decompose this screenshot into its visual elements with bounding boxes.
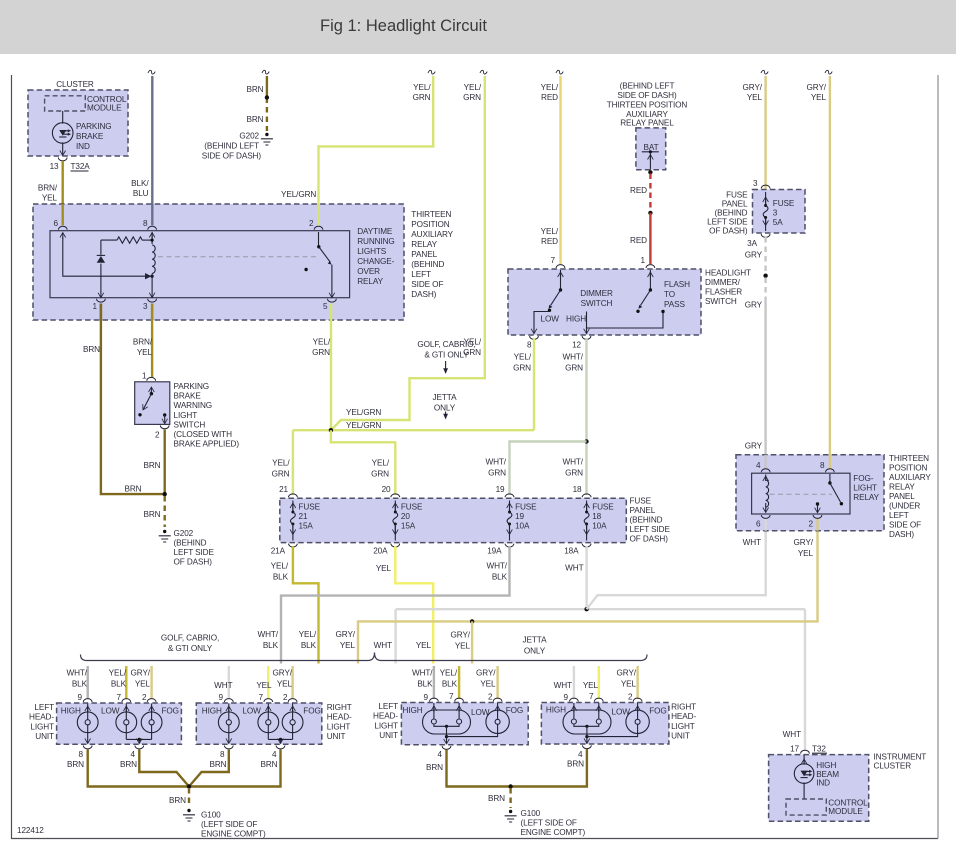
svg-text:OF DASH): OF DASH) xyxy=(174,558,213,567)
svg-text:BLU: BLU xyxy=(133,189,149,198)
svg-text:9: 9 xyxy=(564,693,569,702)
svg-text:WHT: WHT xyxy=(783,730,801,739)
svg-text:RED: RED xyxy=(541,237,558,246)
svg-text:7: 7 xyxy=(449,692,454,701)
svg-text:UNIT: UNIT xyxy=(35,732,54,741)
svg-text:YEL: YEL xyxy=(376,564,392,573)
svg-text:T32: T32 xyxy=(812,745,826,754)
svg-text:RELAY: RELAY xyxy=(357,277,383,286)
svg-text:WHT/: WHT/ xyxy=(486,562,507,571)
svg-text:HEAD-: HEAD- xyxy=(373,712,398,721)
svg-text:SWITCH: SWITCH xyxy=(174,420,206,429)
svg-text:OF DASH): OF DASH) xyxy=(630,535,669,544)
svg-text:LIGHT: LIGHT xyxy=(174,411,198,420)
svg-text:BLK: BLK xyxy=(273,573,289,582)
svg-text:21A: 21A xyxy=(271,547,286,556)
svg-text:1: 1 xyxy=(142,372,147,381)
svg-text:LEFT: LEFT xyxy=(34,703,54,712)
svg-text:BRN: BRN xyxy=(120,760,137,769)
svg-text:FOG: FOG xyxy=(303,707,320,716)
svg-text:RIGHT: RIGHT xyxy=(327,703,352,712)
svg-text:3: 3 xyxy=(143,302,148,311)
svg-text:LEFT SIDE: LEFT SIDE xyxy=(174,548,215,557)
svg-text:G100: G100 xyxy=(521,809,541,818)
svg-text:YEL/: YEL/ xyxy=(271,562,289,571)
svg-text:SIDE OF DASH): SIDE OF DASH) xyxy=(202,152,262,161)
svg-text:IND: IND xyxy=(76,142,90,151)
svg-text:FUSE: FUSE xyxy=(515,503,537,512)
svg-text:RELAY PANEL: RELAY PANEL xyxy=(620,119,674,128)
svg-text:YEL: YEL xyxy=(416,641,432,650)
svg-text:3: 3 xyxy=(773,209,778,218)
svg-text:LIGHT: LIGHT xyxy=(671,722,695,731)
svg-text:HIGH: HIGH xyxy=(546,706,566,715)
svg-text:BRAKE: BRAKE xyxy=(76,132,104,141)
svg-text:BLK/: BLK/ xyxy=(131,179,149,188)
svg-text:FOG: FOG xyxy=(162,707,179,716)
svg-text:FUSE: FUSE xyxy=(299,503,321,512)
svg-text:FUSE: FUSE xyxy=(726,191,748,200)
svg-text:GRY: GRY xyxy=(745,301,763,310)
svg-text:2: 2 xyxy=(155,431,160,440)
svg-text:5: 5 xyxy=(323,302,328,311)
svg-text:WHT: WHT xyxy=(565,564,583,573)
svg-text:BLK: BLK xyxy=(492,573,508,582)
svg-text:CLUSTER: CLUSTER xyxy=(56,80,94,89)
svg-text:BLK: BLK xyxy=(442,680,458,689)
svg-text:YEL: YEL xyxy=(583,681,599,690)
svg-text:GRY/: GRY/ xyxy=(131,669,151,678)
svg-text:GRN: GRN xyxy=(371,470,389,479)
svg-text:THIRTEEN: THIRTEEN xyxy=(411,210,451,219)
svg-text:GRY/: GRY/ xyxy=(273,669,293,678)
svg-text:(BEHIND LEFT: (BEHIND LEFT xyxy=(620,82,675,91)
svg-text:ENGINE COMPT): ENGINE COMPT) xyxy=(521,828,586,837)
svg-text:RUNNING: RUNNING xyxy=(357,237,395,246)
svg-text:GRN: GRN xyxy=(488,469,506,478)
svg-text:MODULE: MODULE xyxy=(828,807,863,816)
svg-text:GRY: GRY xyxy=(745,251,763,260)
svg-text:19A: 19A xyxy=(487,547,502,556)
svg-text:WHT: WHT xyxy=(374,641,392,650)
svg-text:18A: 18A xyxy=(564,547,579,556)
svg-text:THIRTEEN: THIRTEEN xyxy=(889,454,929,463)
svg-text:YEL: YEL xyxy=(621,680,637,689)
svg-text:YEL/: YEL/ xyxy=(440,669,458,678)
svg-text:PARKING: PARKING xyxy=(76,122,112,131)
svg-text:DASH): DASH) xyxy=(411,290,436,299)
svg-text:WHT: WHT xyxy=(214,681,232,690)
svg-text:WHT: WHT xyxy=(554,681,572,690)
svg-text:BRN: BRN xyxy=(426,763,443,772)
svg-text:FLASH: FLASH xyxy=(664,280,690,289)
svg-text:FUSE: FUSE xyxy=(592,503,614,512)
svg-text:YEL/GRN: YEL/GRN xyxy=(346,408,381,417)
svg-text:WHT/: WHT/ xyxy=(485,458,506,467)
svg-text:PANEL: PANEL xyxy=(722,200,748,209)
svg-text:YEL: YEL xyxy=(137,348,153,357)
svg-text:WHT/: WHT/ xyxy=(562,353,583,362)
svg-text:BRAKE: BRAKE xyxy=(174,392,202,401)
svg-text:FUSE: FUSE xyxy=(630,497,652,506)
svg-text:Fig 1: Headlight Circuit: Fig 1: Headlight Circuit xyxy=(320,17,487,35)
svg-text:UNIT: UNIT xyxy=(671,732,690,741)
svg-text:4: 4 xyxy=(756,461,761,470)
svg-text:BRN: BRN xyxy=(210,760,227,769)
svg-text:GRY/: GRY/ xyxy=(476,669,496,678)
svg-text:(BEHIND: (BEHIND xyxy=(174,539,207,548)
svg-text:YEL: YEL xyxy=(798,549,814,558)
svg-text:BRN: BRN xyxy=(67,760,84,769)
svg-text:BRN: BRN xyxy=(247,115,264,124)
svg-text:8: 8 xyxy=(527,341,532,350)
svg-text:21: 21 xyxy=(299,512,308,521)
svg-text:2: 2 xyxy=(309,219,314,228)
svg-text:PANEL: PANEL xyxy=(889,492,915,501)
svg-text:4: 4 xyxy=(578,750,583,759)
svg-text:7: 7 xyxy=(259,693,264,702)
svg-text:FOG: FOG xyxy=(506,706,523,715)
svg-text:4: 4 xyxy=(131,750,136,759)
svg-text:GRY/: GRY/ xyxy=(807,83,827,92)
svg-text:18: 18 xyxy=(592,512,601,521)
svg-text:YEL: YEL xyxy=(811,93,827,102)
svg-text:RED: RED xyxy=(541,93,558,102)
svg-text:17: 17 xyxy=(790,745,799,754)
svg-text:HEAD-: HEAD- xyxy=(327,713,352,722)
svg-text:10A: 10A xyxy=(515,522,530,531)
svg-text:RIGHT: RIGHT xyxy=(671,703,696,712)
svg-text:15A: 15A xyxy=(299,522,314,531)
svg-text:SIDE OF: SIDE OF xyxy=(889,521,921,530)
svg-text:LIGHTS: LIGHTS xyxy=(357,247,387,256)
svg-text:YEL/: YEL/ xyxy=(514,353,532,362)
svg-text:YEL/: YEL/ xyxy=(272,459,290,468)
svg-text:RED: RED xyxy=(630,236,647,245)
svg-text:YEL/GRN: YEL/GRN xyxy=(346,421,381,430)
svg-text:CHANGE-: CHANGE- xyxy=(357,257,394,266)
svg-text:LOW: LOW xyxy=(612,708,631,717)
svg-text:(LEFT SIDE OF: (LEFT SIDE OF xyxy=(201,820,257,829)
svg-text:YEL: YEL xyxy=(747,93,763,102)
svg-text:DIMMER/: DIMMER/ xyxy=(705,278,741,287)
svg-text:LEFT: LEFT xyxy=(411,270,431,279)
svg-text:DIMMER: DIMMER xyxy=(580,289,613,298)
svg-text:7: 7 xyxy=(589,692,594,701)
svg-text:HIGH: HIGH xyxy=(403,706,423,715)
svg-text:OF DASH): OF DASH) xyxy=(709,227,748,236)
svg-text:BLK: BLK xyxy=(417,680,433,689)
svg-text:LOW: LOW xyxy=(541,315,560,324)
svg-text:LIGHT: LIGHT xyxy=(30,722,54,731)
svg-text:GOLF, CABRIO,: GOLF, CABRIO, xyxy=(417,340,475,349)
svg-text:BLK: BLK xyxy=(111,680,127,689)
svg-text:(BEHIND LEFT: (BEHIND LEFT xyxy=(204,142,259,151)
svg-text:SWITCH: SWITCH xyxy=(581,299,613,308)
svg-text:2: 2 xyxy=(283,693,288,702)
svg-text:YEL/: YEL/ xyxy=(109,669,127,678)
svg-text:YEL: YEL xyxy=(277,680,293,689)
svg-text:MODULE: MODULE xyxy=(87,104,122,113)
svg-text:(UNDER: (UNDER xyxy=(889,502,920,511)
svg-text:G202: G202 xyxy=(239,132,259,141)
svg-text:PASS: PASS xyxy=(664,300,685,309)
svg-text:LEFT: LEFT xyxy=(889,511,909,520)
svg-text:LOW: LOW xyxy=(471,708,490,717)
svg-text:POSITION: POSITION xyxy=(411,220,450,229)
svg-text:20: 20 xyxy=(401,512,410,521)
svg-text:TO: TO xyxy=(664,290,675,299)
svg-text:YEL: YEL xyxy=(480,680,496,689)
svg-text:AUXILIARY: AUXILIARY xyxy=(411,230,453,239)
svg-text:GRY/: GRY/ xyxy=(617,669,637,678)
svg-text:G100: G100 xyxy=(201,811,221,820)
svg-text:BRN: BRN xyxy=(488,794,505,803)
svg-text:6: 6 xyxy=(54,219,59,228)
svg-text:BRN: BRN xyxy=(83,345,100,354)
svg-text:21: 21 xyxy=(279,485,288,494)
svg-text:BRN/: BRN/ xyxy=(133,338,153,347)
svg-text:ENGINE COMPT): ENGINE COMPT) xyxy=(201,830,266,839)
svg-text:GRY/: GRY/ xyxy=(451,631,471,640)
svg-text:HIGH: HIGH xyxy=(61,707,81,716)
svg-text:GRN: GRN xyxy=(312,348,330,357)
svg-text:DASH): DASH) xyxy=(889,530,914,539)
svg-text:20A: 20A xyxy=(373,547,388,556)
svg-text:ONLY: ONLY xyxy=(524,647,546,656)
svg-text:9: 9 xyxy=(219,693,224,702)
svg-text:GRY/: GRY/ xyxy=(794,538,814,547)
svg-text:19: 19 xyxy=(515,512,524,521)
svg-text:YEL/: YEL/ xyxy=(541,83,559,92)
svg-text:1: 1 xyxy=(641,256,646,265)
svg-text:HIGH: HIGH xyxy=(566,315,586,324)
svg-text:BRN: BRN xyxy=(144,510,161,519)
svg-text:HEAD-: HEAD- xyxy=(29,713,54,722)
svg-text:7: 7 xyxy=(551,256,556,265)
svg-text:2: 2 xyxy=(809,520,814,529)
svg-text:YEL/GRN: YEL/GRN xyxy=(281,190,316,199)
svg-text:HIGH: HIGH xyxy=(816,761,836,770)
svg-text:RED: RED xyxy=(630,186,647,195)
svg-text:2: 2 xyxy=(628,693,633,702)
svg-text:GRN: GRN xyxy=(565,469,583,478)
svg-text:CLUSTER: CLUSTER xyxy=(874,762,912,771)
svg-text:BRN: BRN xyxy=(144,461,161,470)
svg-text:PANEL: PANEL xyxy=(630,506,656,515)
svg-text:GOLF, CABRIO,: GOLF, CABRIO, xyxy=(161,634,219,643)
svg-text:LIGHT: LIGHT xyxy=(327,722,351,731)
svg-text:FUSE: FUSE xyxy=(773,199,795,208)
svg-text:JETTA: JETTA xyxy=(433,393,458,402)
svg-text:BLK: BLK xyxy=(301,641,317,650)
svg-text:BRN/: BRN/ xyxy=(38,184,58,193)
svg-text:WHT/: WHT/ xyxy=(257,630,278,639)
svg-text:BRN: BRN xyxy=(169,796,186,805)
svg-text:YEL/: YEL/ xyxy=(464,83,482,92)
svg-text:GRN: GRN xyxy=(272,470,290,479)
svg-text:YEL/: YEL/ xyxy=(413,83,431,92)
svg-text:HEAD-: HEAD- xyxy=(671,712,696,721)
svg-text:YEL/: YEL/ xyxy=(299,630,317,639)
svg-text:LEFT SIDE: LEFT SIDE xyxy=(630,525,671,534)
svg-text:RELAY: RELAY xyxy=(853,493,879,502)
svg-text:GRN: GRN xyxy=(513,364,531,373)
svg-text:WHT: WHT xyxy=(743,538,761,547)
svg-text:9: 9 xyxy=(78,693,83,702)
svg-text:UNIT: UNIT xyxy=(379,731,398,740)
svg-text:YEL/: YEL/ xyxy=(541,227,559,236)
svg-text:3: 3 xyxy=(753,179,758,188)
svg-text:BLK: BLK xyxy=(72,680,88,689)
svg-text:BLK: BLK xyxy=(263,641,279,650)
svg-text:YEL: YEL xyxy=(135,680,151,689)
svg-text:WHT/: WHT/ xyxy=(562,458,583,467)
svg-text:GRN: GRN xyxy=(463,93,481,102)
svg-text:8: 8 xyxy=(220,750,225,759)
svg-text:BRN: BRN xyxy=(567,760,584,769)
svg-text:RELAY: RELAY xyxy=(889,483,915,492)
svg-text:(CLOSED WITH: (CLOSED WITH xyxy=(174,430,233,439)
svg-text:FOG-: FOG- xyxy=(853,474,873,483)
svg-text:FOG: FOG xyxy=(649,707,666,716)
svg-text:(BEHIND: (BEHIND xyxy=(411,260,444,269)
svg-text:LOW: LOW xyxy=(101,707,120,716)
svg-text:HIGH: HIGH xyxy=(202,707,222,716)
svg-text:GRY: GRY xyxy=(745,442,763,451)
svg-text:YEL: YEL xyxy=(256,681,272,690)
svg-text:(BEHIND: (BEHIND xyxy=(715,209,748,218)
svg-text:3A: 3A xyxy=(747,239,757,248)
svg-text:& GTI ONLY: & GTI ONLY xyxy=(168,644,213,653)
svg-text:SIDE OF: SIDE OF xyxy=(411,280,443,289)
svg-text:20: 20 xyxy=(382,485,391,494)
svg-text:THIRTEEN POSITION: THIRTEEN POSITION xyxy=(607,101,688,110)
svg-text:(BEHIND: (BEHIND xyxy=(630,516,663,525)
svg-text:PANEL: PANEL xyxy=(411,250,437,259)
svg-text:6: 6 xyxy=(756,520,761,529)
svg-text:INSTRUMENT: INSTRUMENT xyxy=(874,753,927,762)
svg-text:15A: 15A xyxy=(401,522,416,531)
svg-text:4: 4 xyxy=(438,750,443,759)
svg-text:10A: 10A xyxy=(592,522,607,531)
svg-text:T32A: T32A xyxy=(71,162,91,171)
svg-text:BRAKE APPLIED): BRAKE APPLIED) xyxy=(174,440,240,449)
svg-text:YEL: YEL xyxy=(455,642,471,651)
svg-text:LEFT: LEFT xyxy=(378,702,398,711)
svg-text:19: 19 xyxy=(496,485,505,494)
svg-text:OVER: OVER xyxy=(357,267,380,276)
svg-text:LEFT SIDE: LEFT SIDE xyxy=(707,218,748,227)
svg-text:SIDE OF DASH): SIDE OF DASH) xyxy=(617,91,677,100)
svg-text:GRY/: GRY/ xyxy=(336,630,356,639)
svg-text:GRN: GRN xyxy=(565,364,583,373)
svg-text:4: 4 xyxy=(272,750,277,759)
svg-text:GRY/: GRY/ xyxy=(743,83,763,92)
svg-text:LIGHT: LIGHT xyxy=(853,484,877,493)
svg-text:8: 8 xyxy=(79,750,84,759)
svg-text:FUSE: FUSE xyxy=(401,503,423,512)
svg-text:WHT/: WHT/ xyxy=(412,669,433,678)
svg-text:YEL/: YEL/ xyxy=(313,338,331,347)
svg-text:(LEFT SIDE OF: (LEFT SIDE OF xyxy=(521,819,577,828)
svg-text:BRN: BRN xyxy=(261,760,278,769)
svg-text:18: 18 xyxy=(573,485,582,494)
svg-text:YEL: YEL xyxy=(42,194,58,203)
svg-text:2: 2 xyxy=(142,693,147,702)
svg-text:BRN: BRN xyxy=(247,85,264,94)
svg-text:& GTI ONLY: & GTI ONLY xyxy=(424,351,469,360)
svg-text:5A: 5A xyxy=(773,218,783,227)
svg-text:DAYTIME: DAYTIME xyxy=(357,227,393,236)
svg-text:7: 7 xyxy=(117,693,122,702)
svg-text:SWITCH: SWITCH xyxy=(705,297,737,306)
svg-text:JETTA: JETTA xyxy=(523,636,548,645)
svg-text:1: 1 xyxy=(93,302,98,311)
svg-text:FLASHER: FLASHER xyxy=(705,288,742,297)
svg-text:POSITION: POSITION xyxy=(889,464,928,473)
svg-text:8: 8 xyxy=(143,219,148,228)
svg-text:PARKING: PARKING xyxy=(174,382,210,391)
svg-text:ONLY: ONLY xyxy=(434,404,456,413)
svg-text:122412: 122412 xyxy=(17,826,44,835)
svg-text:YEL/: YEL/ xyxy=(372,459,390,468)
svg-text:AUXILIARY: AUXILIARY xyxy=(889,473,931,482)
svg-text:WARNING: WARNING xyxy=(174,401,213,410)
svg-text:LIGHT: LIGHT xyxy=(374,721,398,730)
svg-text:13: 13 xyxy=(50,162,59,171)
svg-text:WHT/: WHT/ xyxy=(66,669,87,678)
svg-text:HEADLIGHT: HEADLIGHT xyxy=(705,269,751,278)
svg-text:BRN: BRN xyxy=(125,485,142,494)
svg-text:UNIT: UNIT xyxy=(327,732,346,741)
svg-text:12: 12 xyxy=(572,341,581,350)
svg-text:RELAY: RELAY xyxy=(411,240,437,249)
svg-text:2: 2 xyxy=(488,693,493,702)
svg-text:9: 9 xyxy=(424,693,429,702)
svg-text:GRN: GRN xyxy=(413,93,431,102)
svg-text:LOW: LOW xyxy=(242,707,261,716)
svg-text:YEL: YEL xyxy=(340,641,356,650)
svg-text:IND: IND xyxy=(816,779,830,788)
svg-text:G202: G202 xyxy=(174,529,194,538)
svg-text:8: 8 xyxy=(820,461,825,470)
